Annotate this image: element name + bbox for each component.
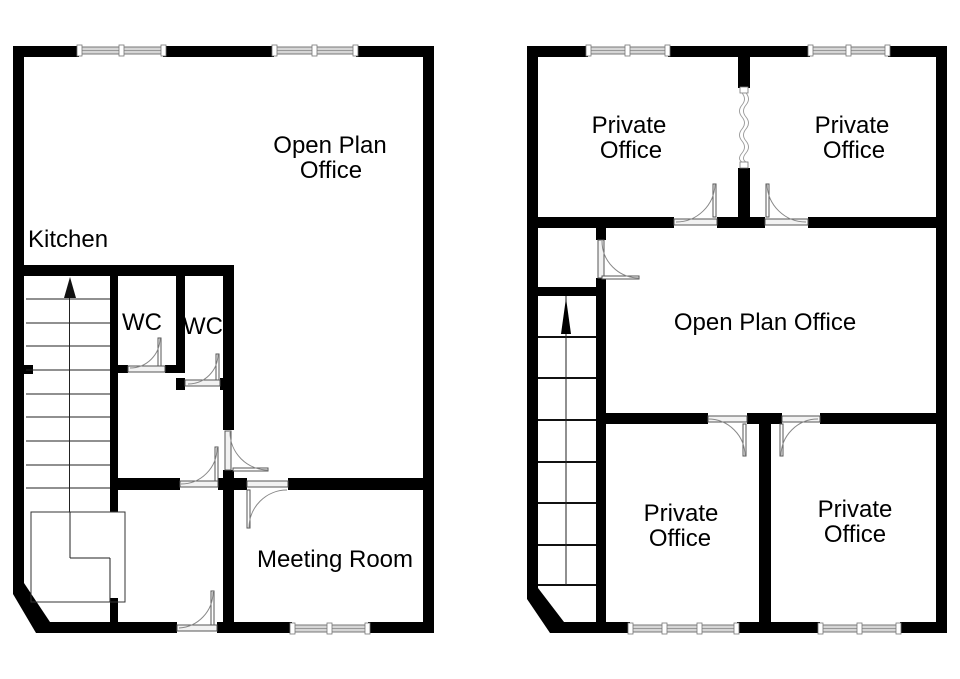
room-label: Open Plan Office xyxy=(674,309,856,336)
wall-segment xyxy=(533,287,606,296)
wall-segment xyxy=(217,622,292,633)
wall-segment xyxy=(738,57,750,88)
room-label: WC xyxy=(122,309,162,336)
stair-up-arrow xyxy=(561,298,571,334)
window xyxy=(77,45,166,56)
stair-lobby-door xyxy=(598,240,639,279)
room-private-office-bottom-left: Private Office xyxy=(644,500,719,552)
wc-left-door xyxy=(128,338,165,372)
first-floor-plan: Private Office Private Office Open Plan … xyxy=(527,45,947,634)
window xyxy=(628,623,739,634)
wall-segment xyxy=(423,46,434,633)
room-label: Office xyxy=(600,137,662,164)
wall-segment xyxy=(527,46,588,57)
wall-segment xyxy=(808,217,936,228)
entrance-door xyxy=(177,591,217,631)
wall-segment xyxy=(356,46,434,57)
wall-segment xyxy=(936,46,947,633)
room-label: WC xyxy=(183,313,223,340)
room-private-office-top-left: Private Office xyxy=(592,112,667,164)
room-wc-left: WC xyxy=(122,309,162,336)
private-office-top-left-door xyxy=(674,184,717,225)
wall-segment xyxy=(13,265,233,276)
room-label: Private xyxy=(818,496,893,523)
wall-segment xyxy=(176,378,185,390)
floor-plan-canvas: Open Plan Office Kitchen WC WC Meeting R… xyxy=(0,0,960,679)
wall-segment xyxy=(118,365,128,373)
private-office-bottom-left-door xyxy=(708,416,747,456)
wall-segment xyxy=(820,413,936,424)
wall-segment xyxy=(13,46,79,57)
stair-landing xyxy=(31,512,125,602)
partition-break-symbol xyxy=(740,87,749,168)
room-label: Office xyxy=(300,157,362,184)
window xyxy=(290,623,370,634)
wc-right-door xyxy=(185,354,220,386)
wall-segment xyxy=(737,622,820,633)
wall-segment xyxy=(288,478,434,490)
wall-segment xyxy=(668,46,810,57)
stair-up-arrow xyxy=(64,277,76,298)
room-label: Office xyxy=(649,525,711,552)
room-kitchen: Kitchen xyxy=(28,226,108,253)
wall-segment xyxy=(13,57,24,583)
room-label: Office xyxy=(823,137,885,164)
wall-segment xyxy=(738,168,750,217)
room-private-office-bottom-right: Private Office xyxy=(818,496,893,548)
room-label: Private xyxy=(592,112,667,139)
wall-segment xyxy=(538,217,674,228)
wall-segment xyxy=(596,228,606,240)
room-label: Private xyxy=(815,112,890,139)
ground-floor-plan: Open Plan Office Kitchen WC WC Meeting R… xyxy=(13,45,434,634)
wall-segment xyxy=(558,622,630,633)
ground-floor-labels: Open Plan Office Kitchen WC WC Meeting R… xyxy=(28,132,413,573)
room-label: Office xyxy=(824,521,886,548)
meeting-room-door xyxy=(247,481,288,528)
window xyxy=(272,45,358,56)
hall-to-office-door xyxy=(225,431,268,471)
private-office-bottom-right-door xyxy=(780,416,820,456)
room-label: Meeting Room xyxy=(257,546,413,573)
private-office-top-right-door xyxy=(765,184,808,225)
wall-segment xyxy=(223,470,234,622)
wall-segment xyxy=(900,622,947,633)
wall-segment xyxy=(527,57,538,590)
hall-door xyxy=(180,447,218,487)
wall-segment xyxy=(596,413,708,424)
window xyxy=(586,45,670,56)
first-floor-staircase xyxy=(538,296,596,585)
room-meeting-room: Meeting Room xyxy=(257,546,413,573)
room-open-plan-office: Open Plan Office xyxy=(273,132,386,184)
wall-segment xyxy=(596,296,606,633)
room-wc-right: WC xyxy=(183,313,223,340)
wall-segment xyxy=(223,265,234,430)
room-label: Open Plan xyxy=(273,132,386,159)
wall-segment xyxy=(747,413,782,424)
window xyxy=(808,45,890,56)
wall-segment xyxy=(717,217,765,228)
wall-segment xyxy=(218,478,247,490)
room-label: Private xyxy=(644,500,719,527)
room-private-office-top-right: Private Office xyxy=(815,112,890,164)
wall-segment xyxy=(163,46,274,57)
wall-segment xyxy=(759,424,771,633)
wall-segment xyxy=(368,622,434,633)
room-label: Kitchen xyxy=(28,226,108,253)
wall-segment xyxy=(110,276,118,512)
window xyxy=(818,623,901,634)
chamfer-wall xyxy=(527,588,564,633)
wall-segment xyxy=(165,365,176,373)
wall-segment xyxy=(110,478,180,490)
room-open-plan-office: Open Plan Office xyxy=(674,309,856,336)
